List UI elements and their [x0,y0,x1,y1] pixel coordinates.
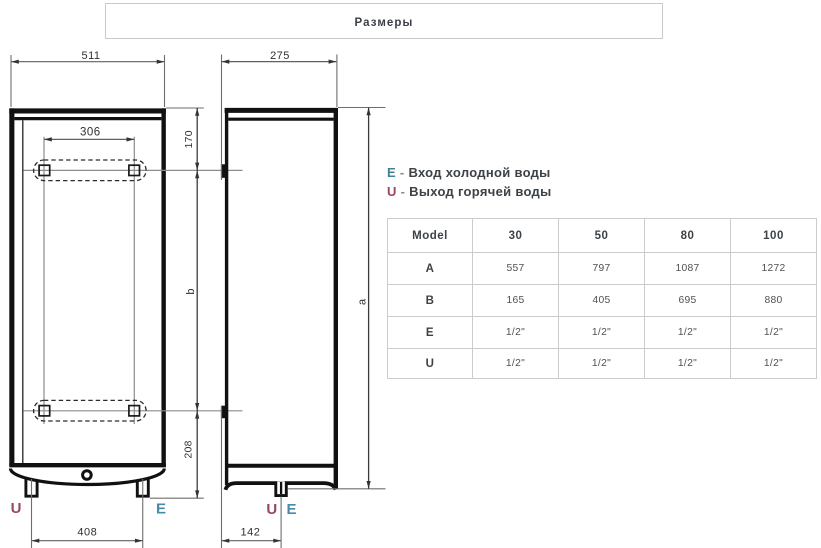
svg-text:275: 275 [270,50,290,62]
svg-text:208: 208 [184,440,195,458]
svg-text:U: U [266,501,277,518]
svg-text:E: E [156,501,166,518]
svg-text:306: 306 [80,127,101,139]
svg-text:170: 170 [184,130,195,148]
svg-text:a: a [357,298,369,305]
svg-text:E: E [286,501,296,518]
svg-text:142: 142 [240,527,260,539]
svg-text:408: 408 [77,527,97,539]
svg-text:b: b [185,288,197,294]
svg-text:U: U [11,500,22,517]
svg-text:511: 511 [81,50,100,62]
